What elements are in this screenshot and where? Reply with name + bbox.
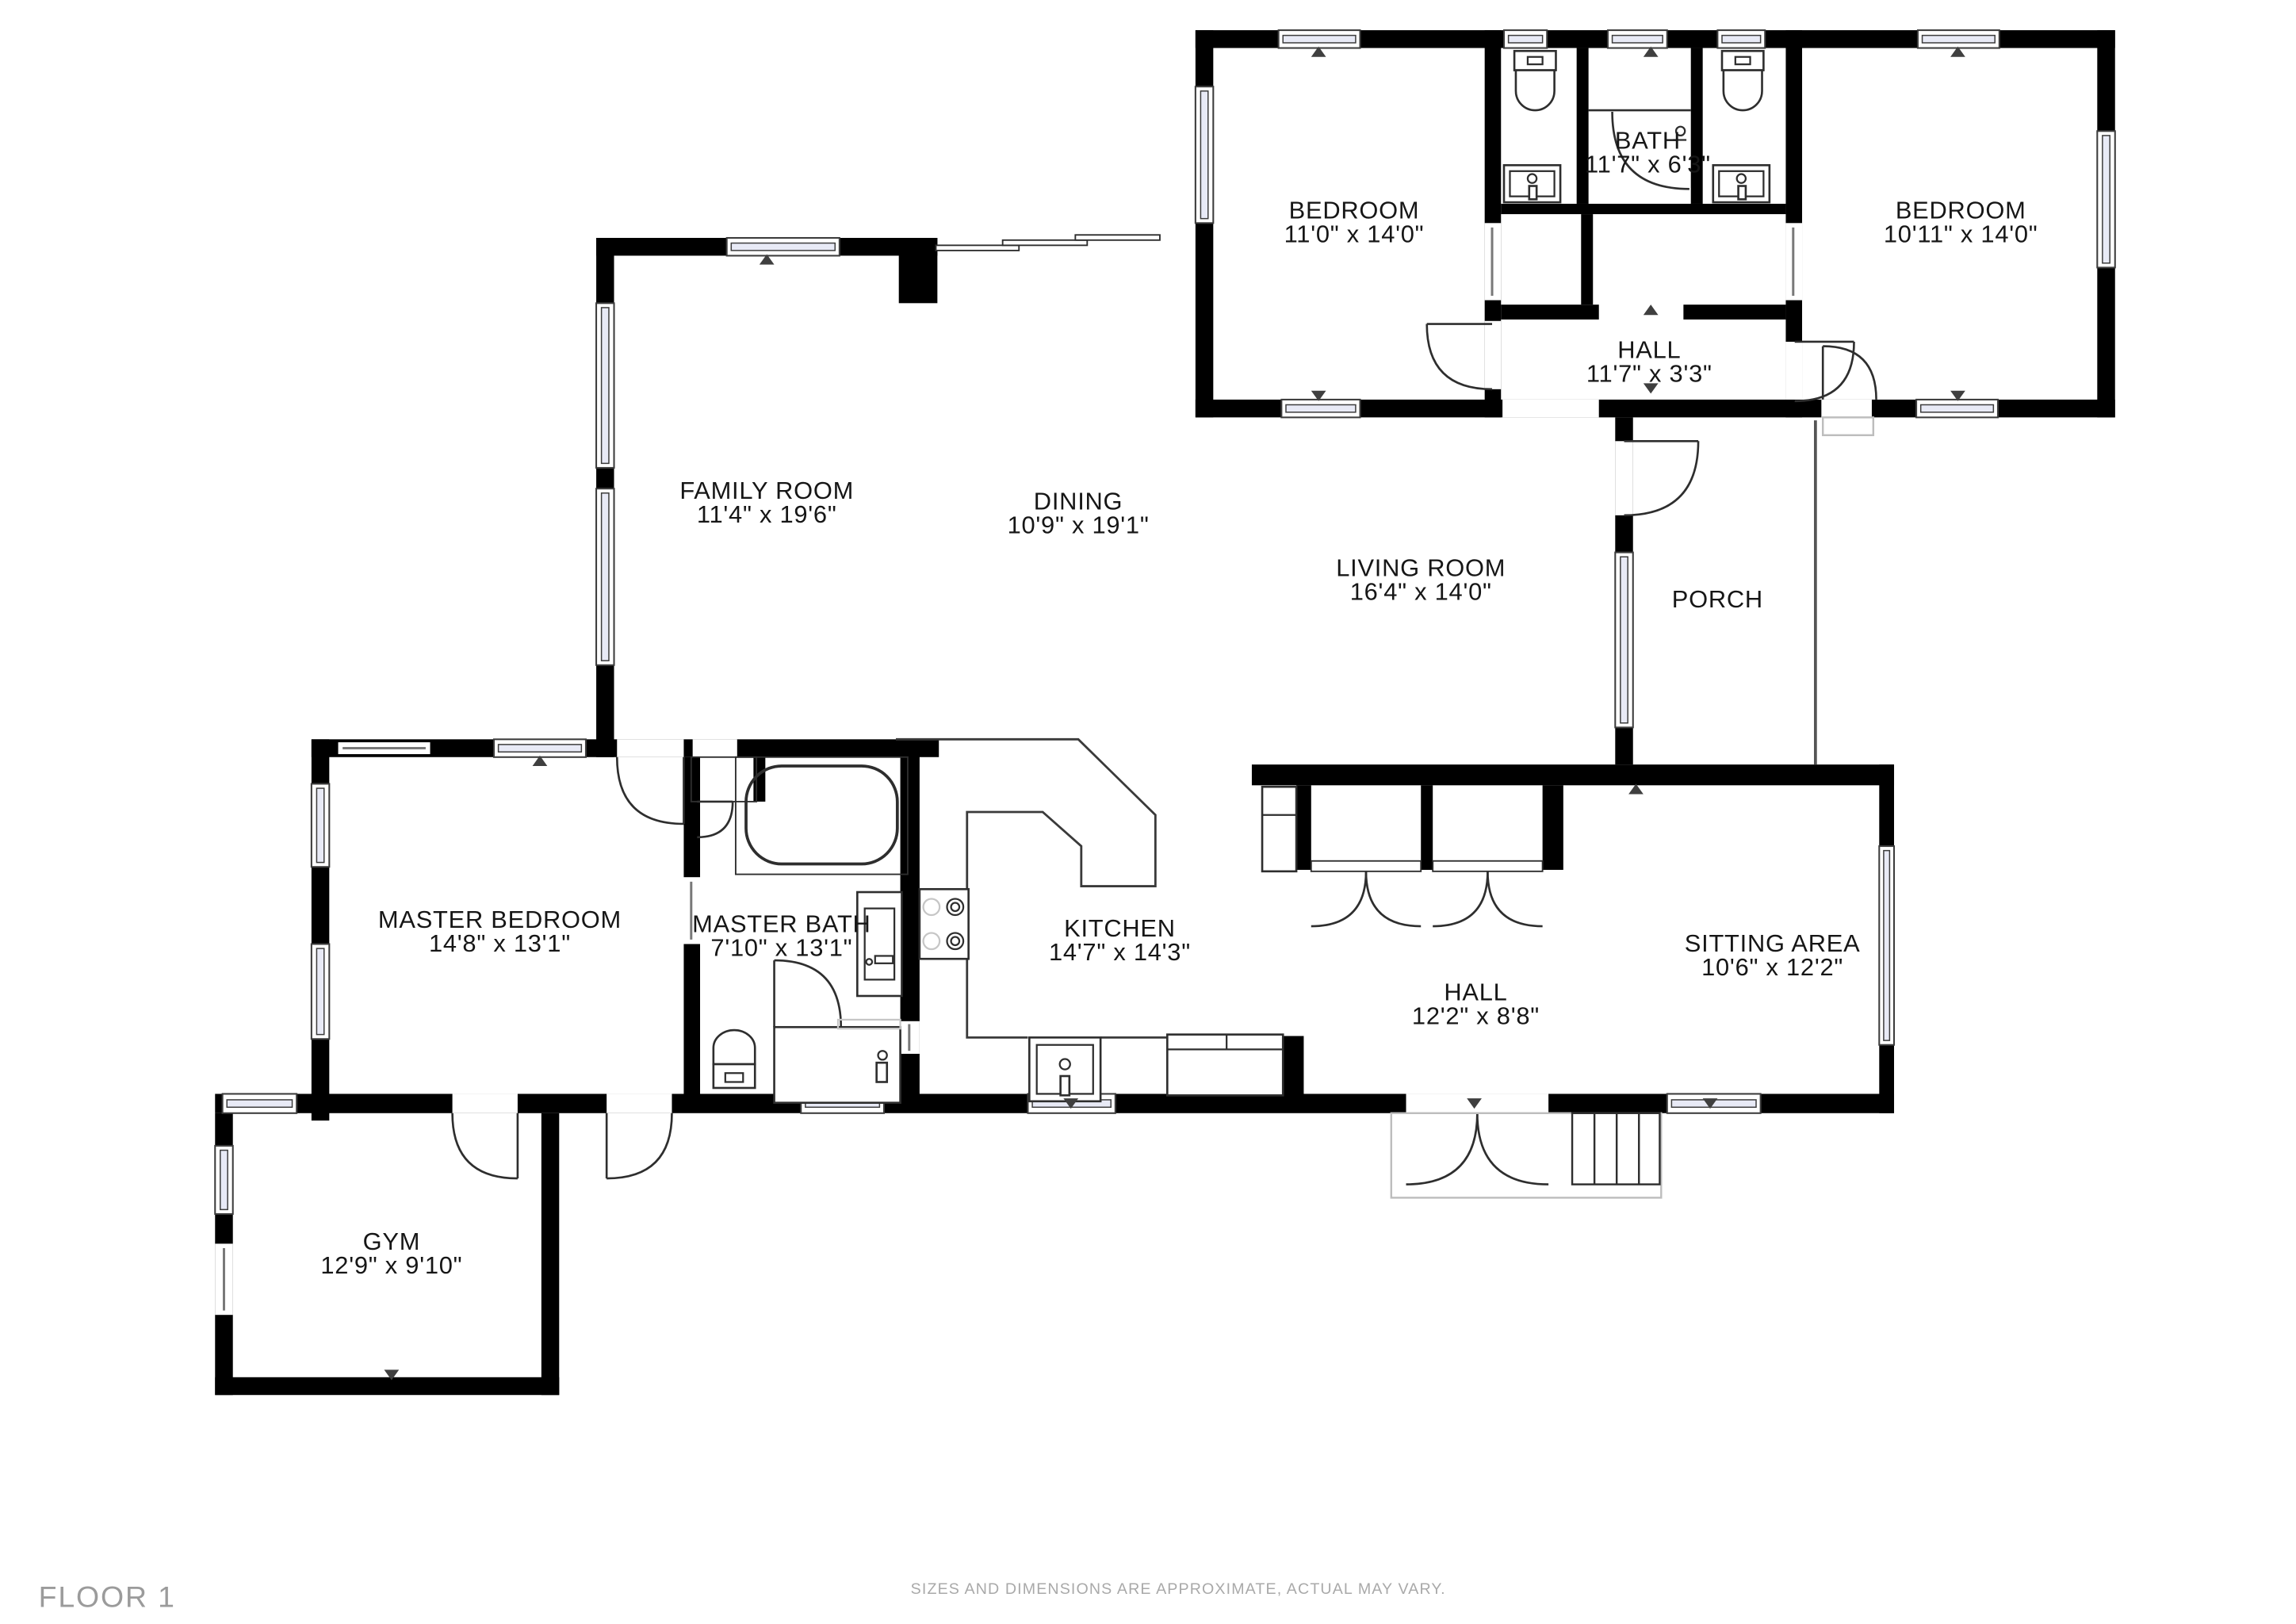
window	[2097, 131, 2114, 267]
door-bedroom1	[1427, 324, 1492, 389]
window	[1615, 553, 1632, 728]
room-label-dims: 14'8" x 13'1"	[429, 929, 571, 957]
window	[727, 238, 840, 255]
window	[1608, 30, 1667, 48]
room-label-dims: 11'7" x 3'3"	[1586, 359, 1712, 387]
window	[1916, 400, 1998, 417]
walls	[215, 30, 2114, 1395]
room-label-name: PORCH	[1672, 585, 1763, 613]
window	[1281, 400, 1360, 417]
pantry	[1262, 787, 1296, 871]
sink	[1713, 165, 1770, 202]
door-porch	[1624, 441, 1699, 515]
room-label-dims: 10'6" x 12'2"	[1701, 953, 1843, 981]
window	[312, 944, 329, 1040]
room-label-dims: 12'9" x 9'10"	[320, 1251, 462, 1279]
stairs	[1572, 1113, 1659, 1185]
door-bedroom2	[1823, 347, 1876, 435]
windows	[215, 30, 2114, 1315]
room-label-dims: 10'9" x 19'1"	[1008, 511, 1150, 538]
toilet	[1514, 51, 1556, 110]
window	[312, 783, 329, 867]
window	[596, 488, 614, 665]
closet-doors-hall	[1311, 861, 1543, 926]
floor-plan-page: BEDROOM11'0" x 14'0"BATH11'7" x 6'3"BEDR…	[0, 0, 2296, 1624]
window	[1196, 86, 1213, 223]
toilet	[1722, 51, 1763, 110]
room-label-dims: 11'4" x 19'6"	[697, 500, 837, 528]
floor-plan-svg: BEDROOM11'0" x 14'0"BATH11'7" x 6'3"BEDR…	[0, 0, 2296, 1624]
room-label-dims: 11'7" x 6'3"	[1585, 151, 1711, 178]
door-hall-upper	[1795, 342, 1854, 401]
door-master-closet	[697, 802, 733, 837]
window	[1279, 30, 1360, 48]
room-label-dims: 7'10" x 13'1"	[710, 933, 852, 961]
door-master-bath	[775, 960, 841, 1027]
window-slot	[215, 1243, 232, 1315]
disclaimer-text: SIZES AND DIMENSIONS ARE APPROXIMATE, AC…	[911, 1580, 1446, 1598]
window	[494, 739, 586, 756]
window	[215, 1146, 232, 1214]
kitchen-island	[1167, 1035, 1283, 1096]
room-label-dims: 10'11" x 14'0"	[1884, 220, 2038, 248]
window	[1879, 846, 1894, 1045]
room-label-dims: 14'7" x 14'3"	[1049, 938, 1191, 966]
toilet	[714, 1030, 755, 1088]
window	[223, 1094, 297, 1113]
floor-label: FLOOR 1	[39, 1580, 176, 1614]
window	[1918, 30, 1999, 48]
window	[596, 303, 614, 468]
room-label-dims: 12'2" x 8'8"	[1412, 1002, 1540, 1030]
door-entry-double	[1406, 1113, 1549, 1185]
window	[1504, 30, 1547, 48]
room-label-dims: 11'0" x 14'0"	[1284, 220, 1425, 248]
room-label-dims: 16'4" x 14'0"	[1350, 577, 1492, 605]
sink	[1504, 165, 1560, 202]
shower-stall	[857, 892, 901, 996]
door-master-exit	[607, 1113, 672, 1178]
cooktop	[920, 889, 969, 959]
kitchen-sink	[1029, 1037, 1100, 1101]
vanity	[775, 1020, 901, 1103]
open-partition-lines	[936, 235, 1159, 251]
window-slot	[339, 742, 430, 754]
doors	[453, 112, 1877, 1185]
entry-landing	[1391, 1113, 1661, 1198]
door-gym	[453, 1113, 518, 1178]
door-master-bedroom	[617, 757, 683, 824]
window	[1717, 30, 1765, 48]
